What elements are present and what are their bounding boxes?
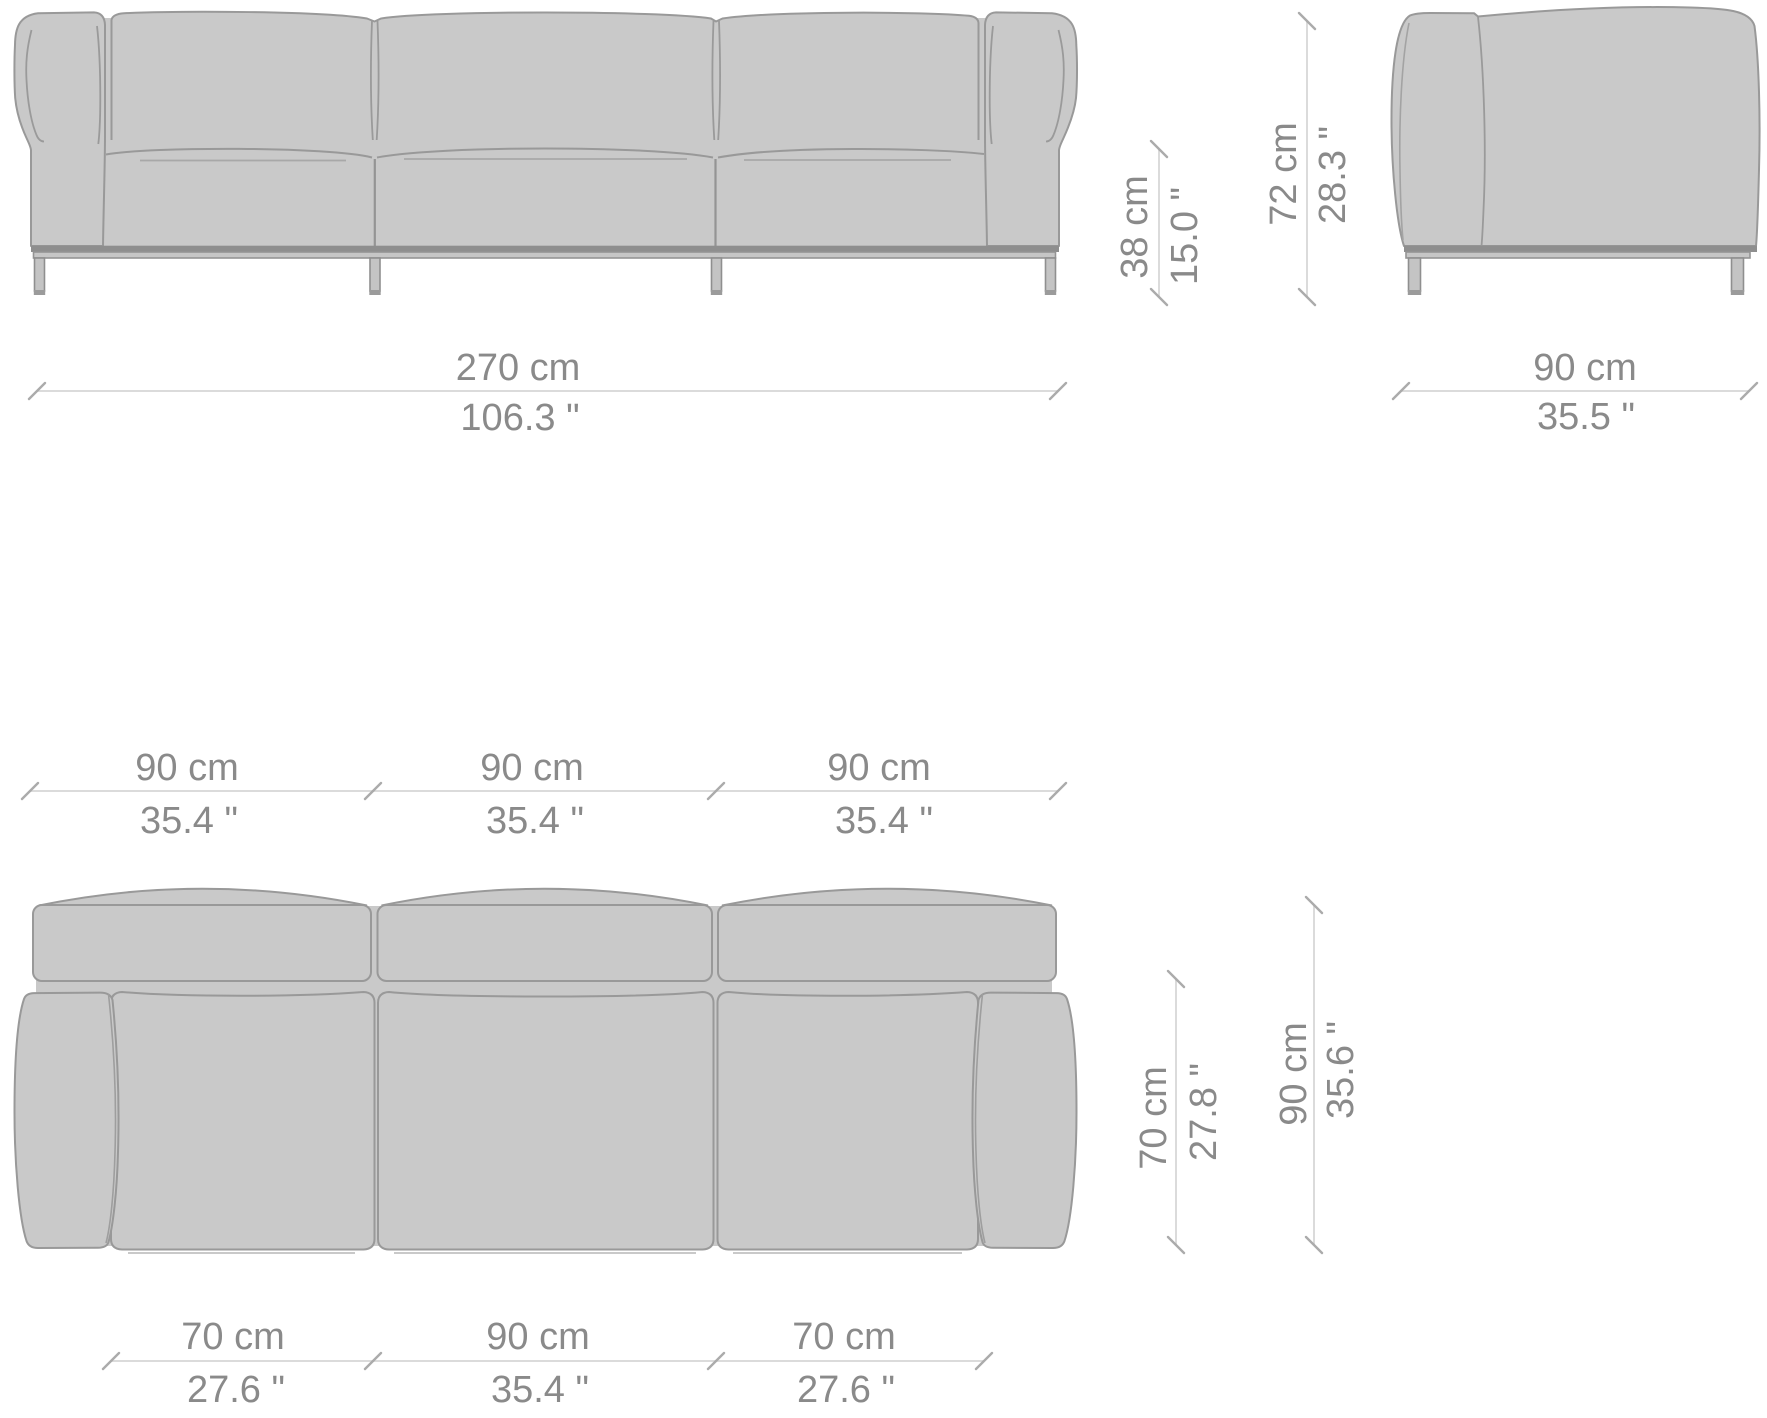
svg-text:27.8 ": 27.8 " — [1183, 1063, 1225, 1161]
svg-text:270 cm: 270 cm — [456, 347, 581, 389]
svg-text:35.4 ": 35.4 " — [486, 800, 584, 842]
svg-text:90 cm: 90 cm — [135, 747, 238, 789]
svg-text:35.4 ": 35.4 " — [491, 1369, 589, 1411]
svg-text:28.3 ": 28.3 " — [1312, 126, 1354, 224]
svg-text:27.6 ": 27.6 " — [797, 1369, 895, 1411]
svg-text:35.4 ": 35.4 " — [140, 800, 238, 842]
svg-text:35.6 ": 35.6 " — [1320, 1021, 1362, 1119]
svg-text:70 cm: 70 cm — [792, 1316, 895, 1358]
svg-text:35.4 ": 35.4 " — [835, 800, 933, 842]
svg-text:70 cm: 70 cm — [1133, 1066, 1175, 1169]
svg-text:27.6 ": 27.6 " — [187, 1369, 285, 1411]
svg-text:90 cm: 90 cm — [1533, 347, 1636, 389]
svg-text:38 cm: 38 cm — [1114, 175, 1156, 278]
svg-text:90 cm: 90 cm — [1273, 1022, 1315, 1125]
svg-text:72 cm: 72 cm — [1263, 122, 1305, 225]
svg-text:15.0 ": 15.0 " — [1164, 187, 1206, 285]
svg-text:70 cm: 70 cm — [181, 1316, 284, 1358]
svg-text:35.5 ": 35.5 " — [1537, 396, 1635, 438]
svg-text:90 cm: 90 cm — [480, 747, 583, 789]
svg-text:106.3 ": 106.3 " — [460, 397, 579, 439]
svg-text:90 cm: 90 cm — [486, 1316, 589, 1358]
svg-text:90 cm: 90 cm — [827, 747, 930, 789]
